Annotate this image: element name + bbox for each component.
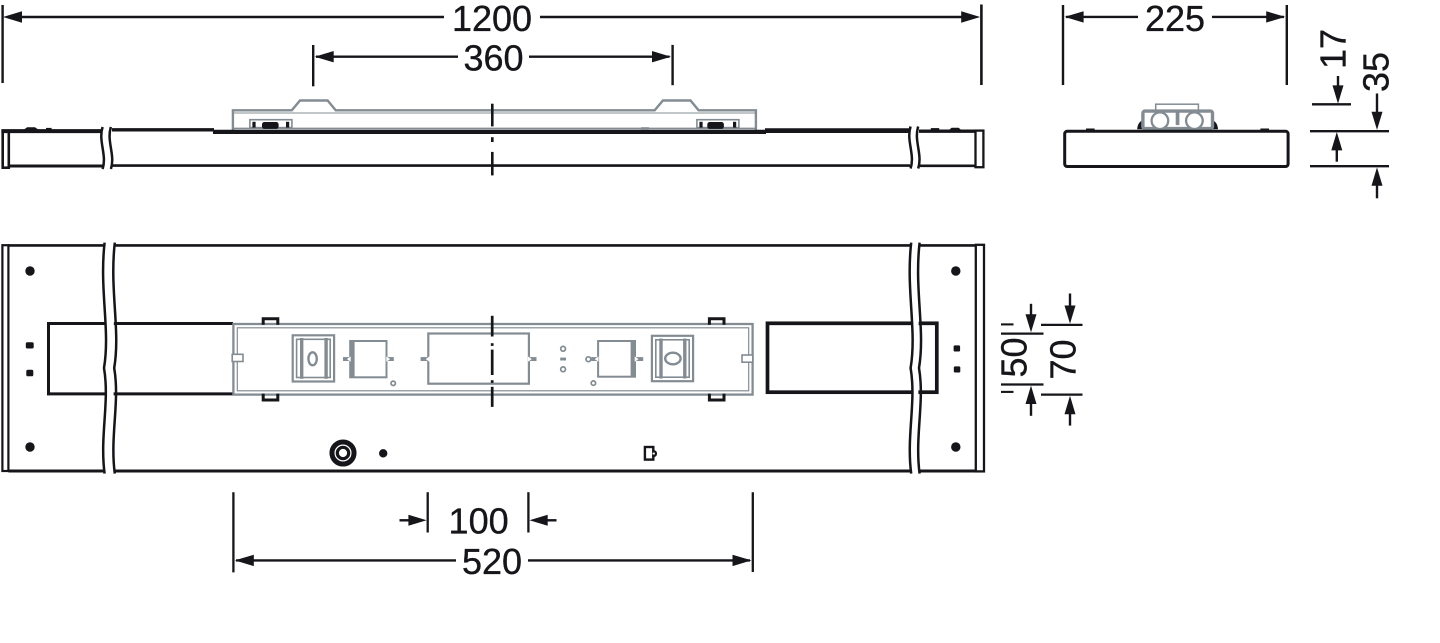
svg-text:70: 70 <box>1043 339 1084 379</box>
svg-text:100: 100 <box>449 500 509 541</box>
svg-text:17: 17 <box>1313 29 1354 69</box>
svg-text:520: 520 <box>462 541 522 582</box>
svg-text:1200: 1200 <box>452 0 532 39</box>
svg-text:35: 35 <box>1356 52 1397 92</box>
svg-text:225: 225 <box>1145 0 1205 39</box>
svg-text:50: 50 <box>994 337 1035 377</box>
svg-text:360: 360 <box>463 37 523 78</box>
